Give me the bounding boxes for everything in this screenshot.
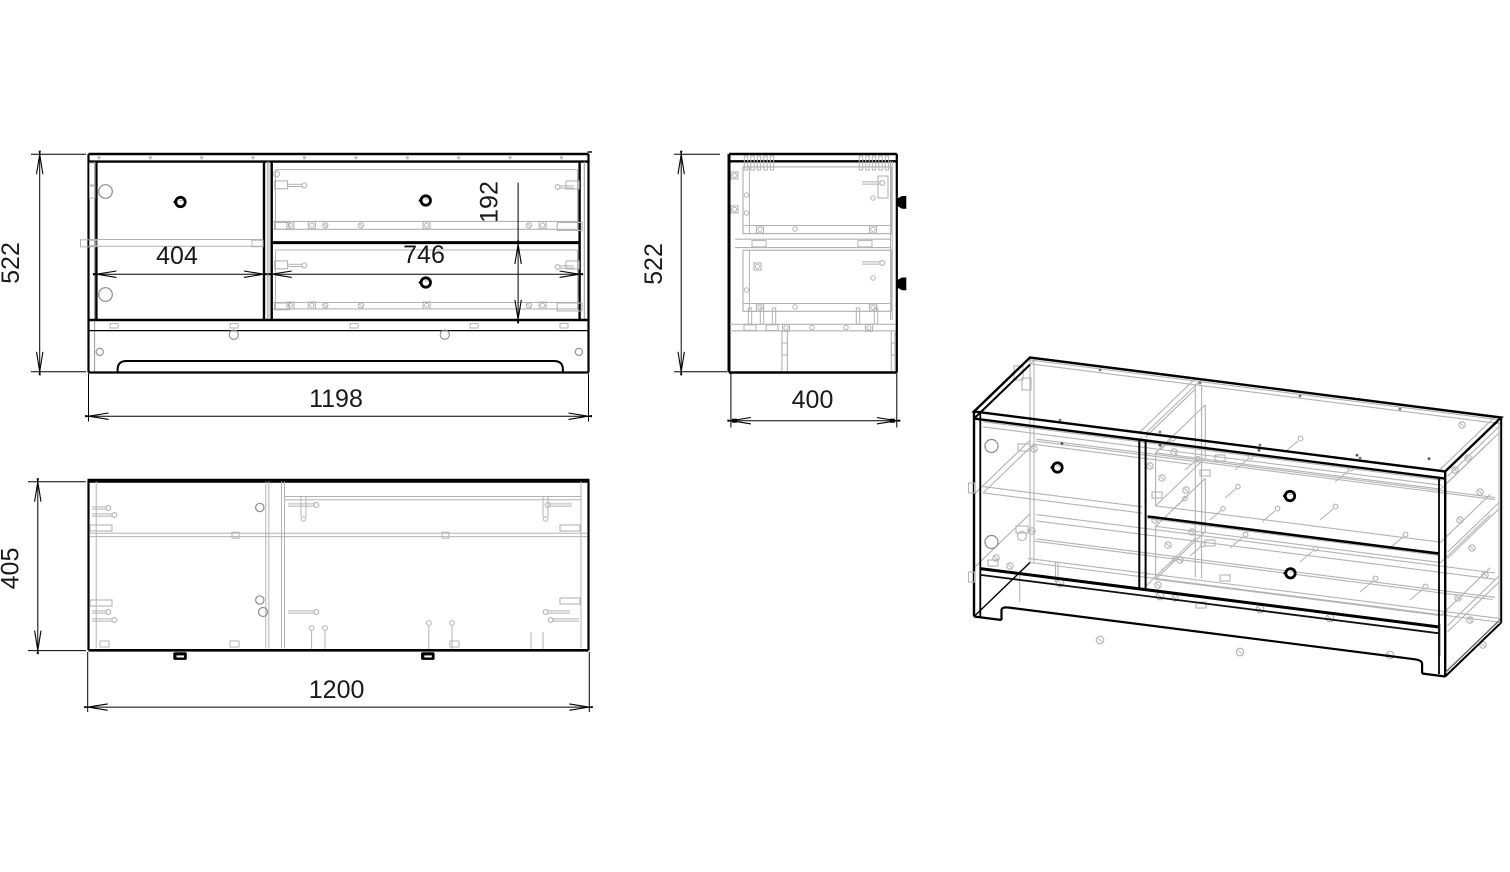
svg-text:1198: 1198 <box>309 385 363 413</box>
svg-text:522: 522 <box>640 243 668 285</box>
svg-text:746: 746 <box>403 241 445 269</box>
svg-text:522: 522 <box>0 242 25 284</box>
svg-text:1200: 1200 <box>309 676 365 704</box>
svg-text:400: 400 <box>792 386 834 414</box>
svg-text:405: 405 <box>0 548 25 590</box>
svg-text:192: 192 <box>476 181 504 223</box>
svg-text:404: 404 <box>156 242 198 270</box>
